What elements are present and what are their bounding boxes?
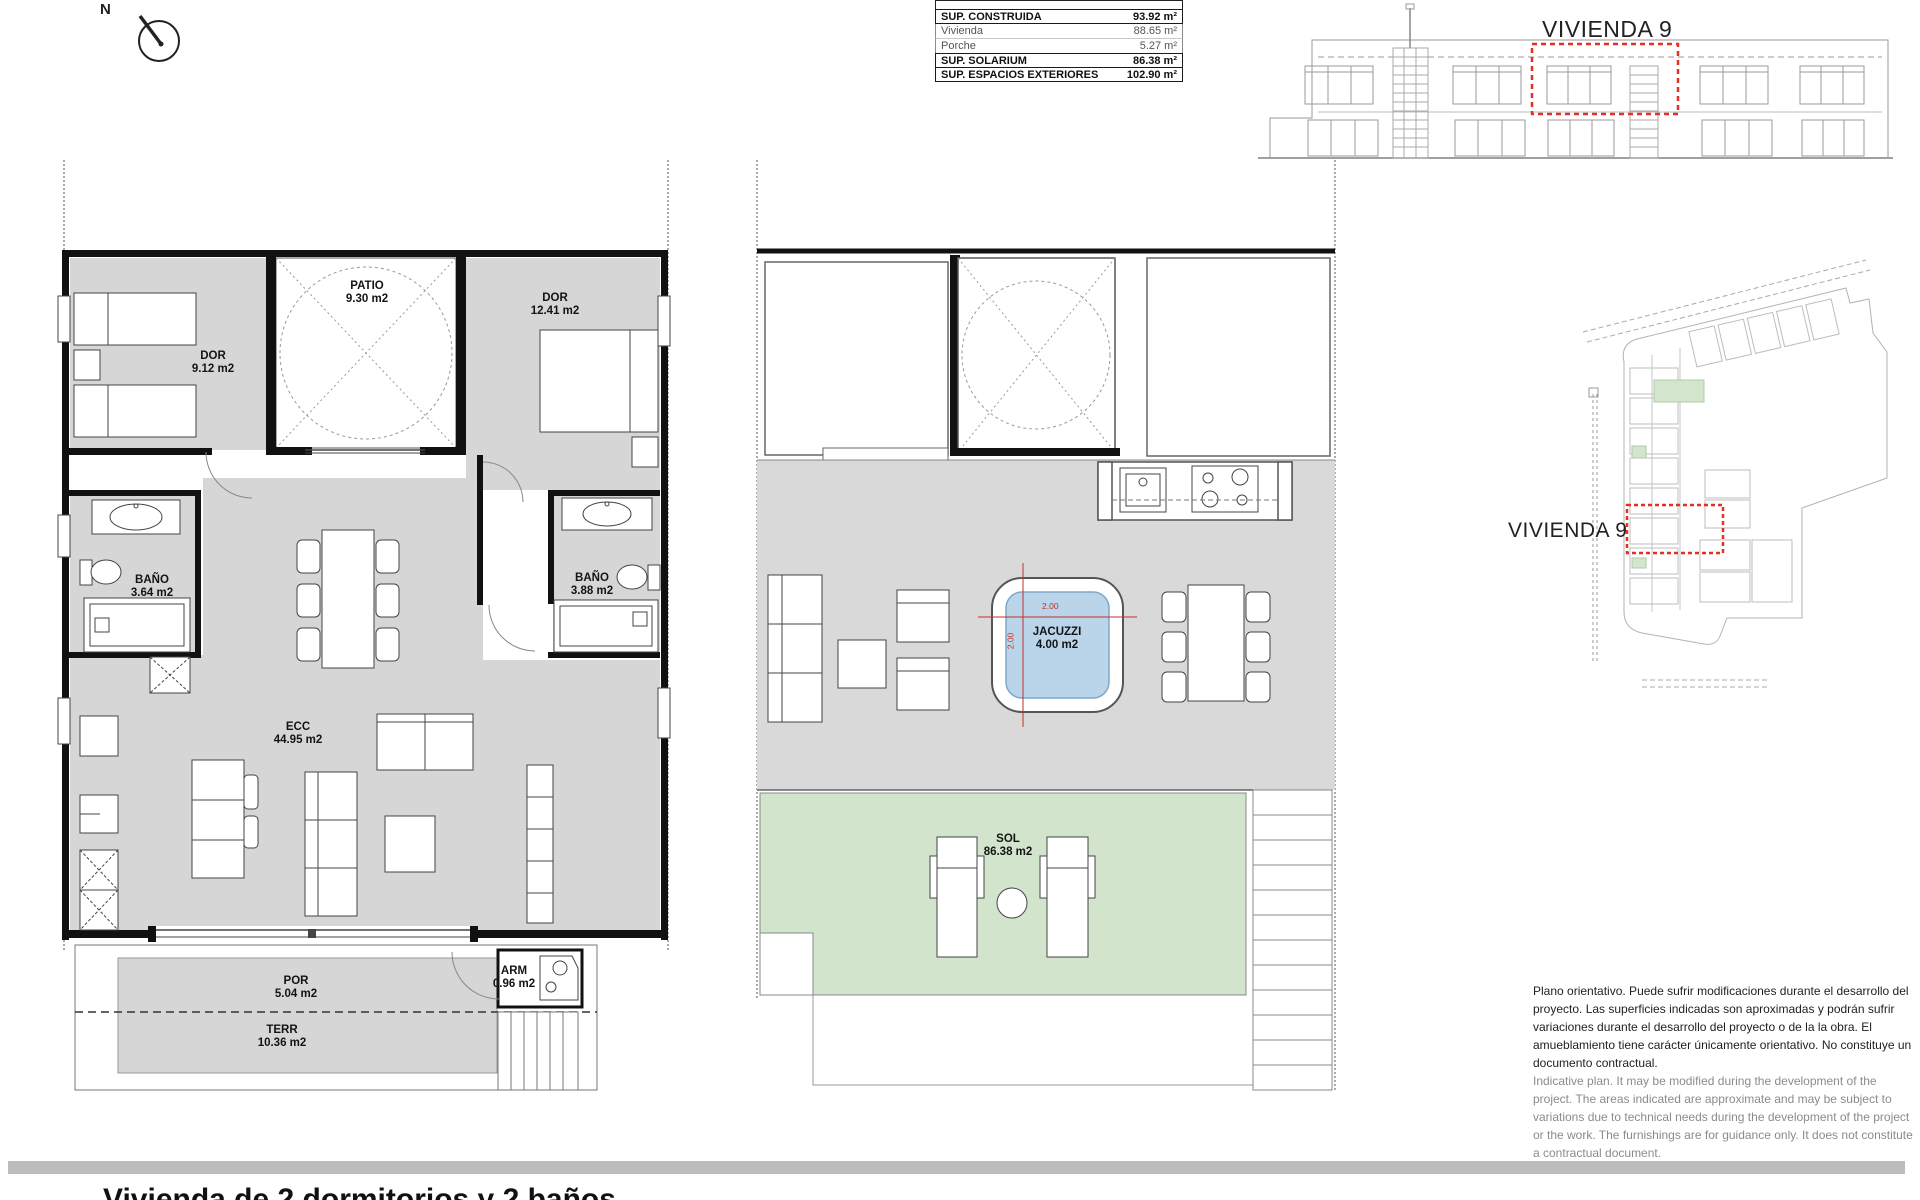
room-label-dor1: DOR9.12 m2 [192, 350, 234, 376]
disclaimer-en: Indicative plan. It may be modified duri… [1533, 1072, 1915, 1162]
room-label-por: POR5.04 m2 [275, 975, 317, 1001]
room-label-dor2: DOR12.41 m2 [531, 292, 580, 318]
disclaimer-block: Plano orientativo. Puede sufrir modifica… [1533, 982, 1915, 1162]
footer-divider-bar [8, 1161, 1905, 1174]
row-value: 93.92 m² [1133, 11, 1177, 23]
row-label: Porche [941, 40, 976, 52]
room-label-patio: PATIO9.30 m2 [346, 280, 388, 306]
table-row-vivienda: Vivienda 88.65 m² [935, 24, 1183, 39]
footer-cut-text: Vivienda de 2 dormitorios y 2 baños [103, 1183, 616, 1200]
row-label: Vivienda [941, 25, 983, 37]
room-label-bano2: BAÑO3.88 m2 [571, 572, 613, 598]
row-label: SUP. CONSTRUIDA [941, 11, 1042, 23]
table-row-exteriores: SUP. ESPACIOS EXTERIORES 102.90 m² [935, 67, 1183, 82]
row-value: 5.27 m² [1140, 40, 1177, 52]
room-label-sol: SOL86.38 m2 [984, 833, 1033, 859]
row-value: 86.38 m² [1133, 55, 1177, 67]
room-label-bano1: BAÑO3.64 m2 [131, 574, 173, 600]
jacuzzi-height-dim: 2.00 [1005, 633, 1015, 650]
site-plan-drawing [1583, 260, 1887, 687]
table-row-solarium: SUP. SOLARIUM 86.38 m² [935, 53, 1183, 68]
room-label-terr: TERR10.36 m2 [258, 1024, 307, 1050]
solarium-floor-plan [757, 160, 1335, 1090]
north-compass-icon [139, 16, 179, 61]
plan-sheet: N SUP. CONSTRUIDA 93.92 m² Vivienda 88.6… [0, 0, 1920, 1200]
room-label-ecc: ECC44.95 m2 [274, 721, 323, 747]
row-label: SUP. SOLARIUM [941, 55, 1027, 67]
row-value: 88.65 m² [1134, 25, 1177, 37]
row-label: SUP. ESPACIOS EXTERIORES [941, 69, 1098, 81]
row-value: 102.90 m² [1127, 69, 1177, 81]
jacuzzi-width-dim: 2.00 [1042, 601, 1059, 611]
room-label-arm: ARM0.96 m2 [493, 965, 535, 991]
area-summary-table: SUP. CONSTRUIDA 93.92 m² Vivienda 88.65 … [935, 0, 1183, 82]
north-label: N [100, 1, 111, 18]
table-row-construida: SUP. CONSTRUIDA 93.92 m² [935, 9, 1183, 24]
table-row-porche: Porche 5.27 m² [935, 39, 1183, 54]
elevation-unit-caption: VIVIENDA 9 [1542, 16, 1672, 43]
site-vivienda9-highlight [1627, 505, 1723, 553]
room-label-jacuzzi: JACUZZI4.00 m2 [1033, 626, 1082, 652]
disclaimer-es: Plano orientativo. Puede sufrir modifica… [1533, 982, 1915, 1072]
site-unit-caption: VIVIENDA 9 [1508, 519, 1627, 543]
